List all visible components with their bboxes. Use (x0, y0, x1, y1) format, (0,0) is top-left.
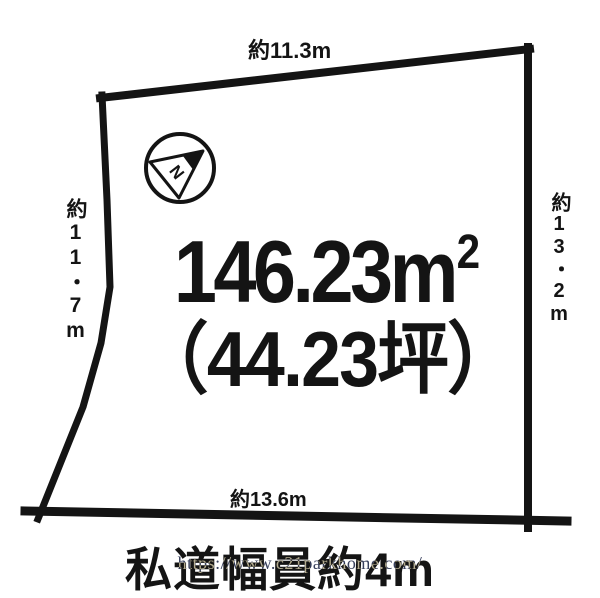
watermark-url: https://www.c21parkhome.com/ (0, 553, 600, 574)
area-value: 146.23m (174, 222, 455, 321)
area-tsubo: （44.23坪） (111, 320, 543, 398)
dimension-label-left: 約11・7m (60, 198, 90, 344)
area-square-meters: 146.23m2 (120, 228, 534, 316)
dimension-label-top: 約11.3m (248, 33, 331, 65)
land-plot-diagram: N 約11.3m 約11・7m 約13・2m 約13.6m 146.23m2 （… (0, 0, 600, 598)
compass-north-letter: N (165, 162, 188, 183)
area-text-block: 146.23m2 （44.23坪） (92, 228, 562, 398)
plot-edge-bottom (25, 511, 567, 521)
compass-north-arrow-icon: N (146, 134, 214, 202)
area-superscript: 2 (457, 229, 480, 277)
dimension-label-bottom: 約13.6m (230, 483, 307, 512)
